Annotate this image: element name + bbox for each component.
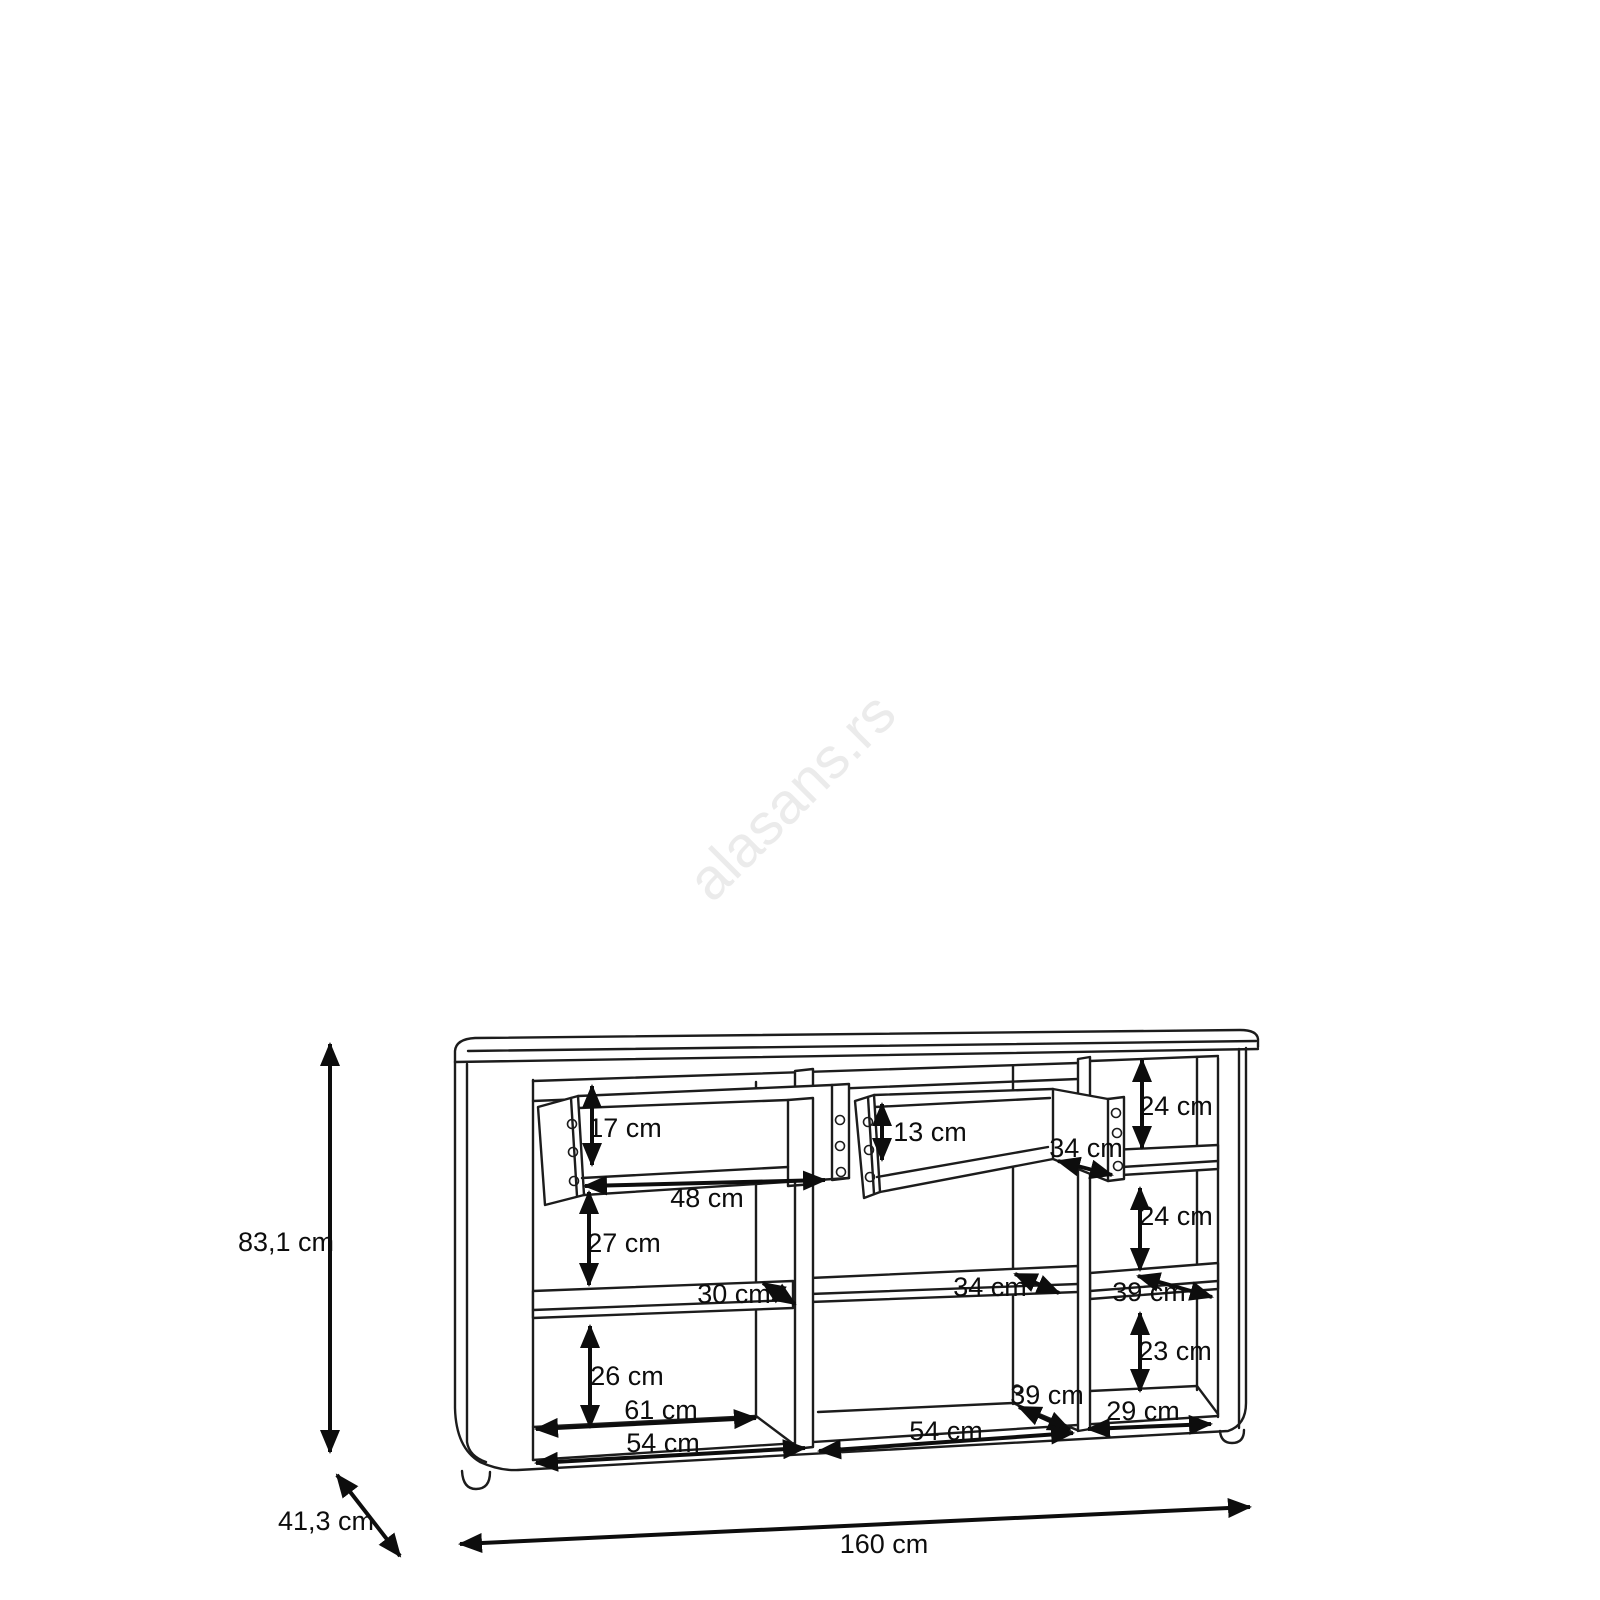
cabinet-top-panel-front-edge xyxy=(468,1041,1256,1051)
right-drawer-depth-label: 34 cm xyxy=(1049,1133,1123,1163)
right-width-label: 29 cm xyxy=(1106,1396,1180,1426)
left-side-edge-line xyxy=(467,1064,486,1462)
diagram-canvas: alasans.rs xyxy=(0,0,1600,1600)
middle-floor-depth-label: 39 cm xyxy=(1010,1380,1084,1410)
right-section-ceiling xyxy=(1090,1056,1218,1061)
overall-height-label: 83,1 cm xyxy=(238,1227,334,1257)
middle-width-label: 54 cm xyxy=(909,1416,983,1446)
right-bottom-height-label: 23 cm xyxy=(1138,1336,1212,1366)
right-shelf-depth-label: 39 cm xyxy=(1112,1277,1186,1307)
overall-width-label: 160 cm xyxy=(840,1529,929,1559)
right-top-height-label: 24 cm xyxy=(1139,1091,1213,1121)
left-shelf-depth-label: 30 cm xyxy=(697,1279,771,1309)
furniture-dimension-diagram: alasans.rs xyxy=(0,0,1600,1600)
left-below-drawer-label: 27 cm xyxy=(587,1228,661,1258)
left-width-label: 54 cm xyxy=(626,1428,700,1458)
left-drawer-width-label: 48 cm xyxy=(670,1183,744,1213)
left-bottom-height-label: 26 cm xyxy=(590,1361,664,1391)
left-drawer-height-label: 17 cm xyxy=(588,1113,662,1143)
right-drawer-height-label: 13 cm xyxy=(893,1117,967,1147)
right-middle-height-label: 24 cm xyxy=(1139,1201,1213,1231)
left-foot xyxy=(462,1471,490,1489)
overall-depth-label: 41,3 cm xyxy=(278,1506,374,1536)
middle-shelf-depth-label: 34 cm xyxy=(953,1272,1027,1302)
watermark-text: alasans.rs xyxy=(675,680,908,913)
left-inner-width-label: 61 cm xyxy=(624,1395,698,1425)
